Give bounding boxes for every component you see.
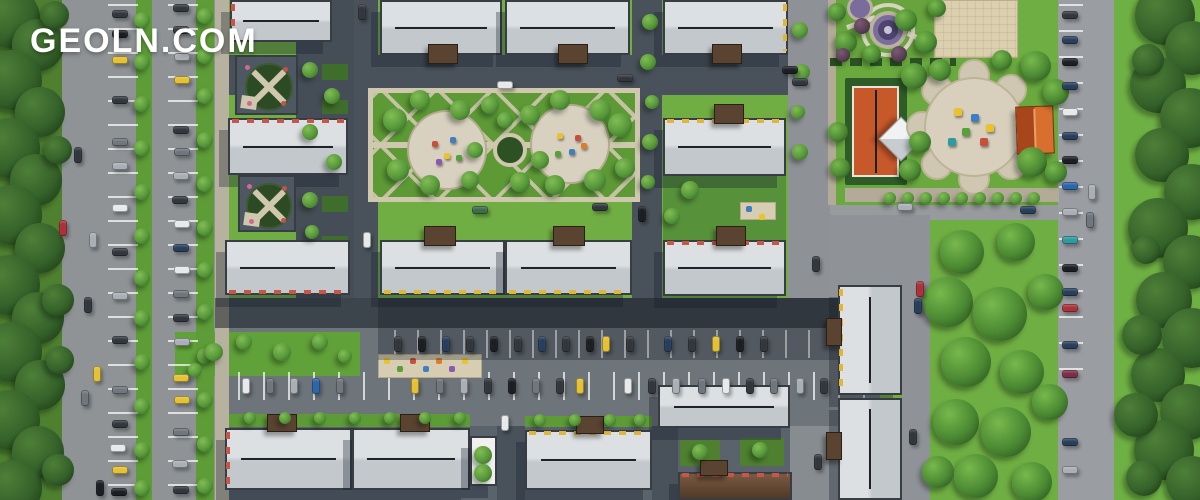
car-dark [626,336,634,352]
tree [461,171,479,189]
tree [922,456,954,488]
roof-deck-garden [238,175,296,232]
car-dark [556,378,564,394]
roof-ridge [678,267,771,269]
entrance-porch [826,318,842,346]
roof-ridge [678,27,772,29]
car-dark [792,78,808,86]
tree [681,181,699,199]
tree [941,337,991,387]
deck-flowerbed [281,101,286,106]
car-navy [1062,438,1078,446]
watermark-logo: GEOLN.COM [30,22,258,61]
tree [534,414,546,426]
road [902,215,930,500]
car-gray [112,138,128,146]
roof-ridge [395,27,487,29]
tree [981,407,1031,457]
car-taxi [576,378,584,394]
tree [205,343,223,361]
car-dark [112,336,128,344]
tree [531,151,549,169]
play-equipment [954,108,962,116]
play-equipment [555,151,561,157]
entrance-porch [428,44,458,64]
play-equipment [449,366,455,372]
tree [44,136,72,164]
road [652,426,678,500]
deck-flowerbed [245,65,250,70]
car-black [638,206,646,222]
tree [640,54,656,70]
play-equipment [575,135,581,141]
playground-strip [740,202,776,220]
facade-trim [783,4,787,51]
play-equipment [980,138,988,146]
tree [752,442,768,458]
plaza-paved [934,0,1018,58]
car-black [418,336,426,352]
tree [791,105,805,119]
car-gray [173,428,189,436]
tree [134,96,150,112]
tree [1132,236,1160,264]
building-block [225,428,352,490]
lawn [136,0,152,500]
tree [481,96,499,114]
car-dark [760,336,768,352]
tree [134,310,150,326]
tree [642,134,658,150]
tree [891,46,907,62]
facade-trim [384,290,501,294]
car-gray [266,378,274,394]
tree [279,412,291,424]
tree [792,144,808,160]
road [497,426,525,500]
car-blue [1062,182,1078,190]
tree [608,113,632,137]
car-white [242,378,250,394]
tree [410,90,430,110]
car-dark [112,10,128,18]
car-teal [1062,236,1078,244]
tree [929,59,951,81]
tree [992,50,1012,70]
tree [42,284,74,316]
tree [510,172,530,192]
tree [236,334,252,350]
play-equipment [746,206,752,212]
tree [895,9,917,31]
car-taxi [93,366,101,382]
car-black [111,488,127,496]
car-taxi [174,396,190,404]
road [788,0,832,330]
building-block [505,240,632,295]
car-white [363,232,371,248]
car-black [490,336,498,352]
car-silver [89,232,97,248]
building-block [380,240,505,295]
garden-flowerbed [884,26,892,34]
tree [197,392,213,408]
roof-deck-garden [235,55,298,115]
tree [273,343,291,361]
car-black [1062,156,1078,164]
tree [550,90,570,110]
car-silver [1088,184,1096,200]
car-white [110,444,126,452]
tree [1045,161,1067,183]
tree [326,154,342,170]
tree [854,18,870,34]
tree [450,100,470,120]
tree [420,175,440,195]
tree [604,414,616,426]
car-black [586,336,594,352]
tree [920,192,932,204]
tree [312,334,328,350]
tree [474,464,492,482]
tree [134,184,150,200]
lawn [322,196,348,212]
car-dark [592,203,608,211]
deck-flowerbed [281,218,286,223]
tree [828,122,848,142]
facade-trim [226,432,230,486]
roof-ridge [241,458,337,460]
car-gray [698,378,706,394]
car-dark [112,420,128,428]
tree [134,140,150,156]
tree [302,124,318,140]
car-red [59,220,67,236]
tree [197,478,213,494]
car-white [722,378,730,394]
roof-ridge [541,459,637,461]
car-red [1062,304,1078,312]
entrance-porch [714,104,744,124]
tree [134,354,150,370]
car-silver [460,378,468,394]
tree [940,230,984,274]
roof-ridge [869,297,871,384]
roof-ridge [240,267,334,269]
tree [1032,384,1068,420]
car-navy [664,336,672,352]
car-dark [394,336,402,352]
car-black [96,480,104,496]
tree [197,304,213,320]
car-dark [688,336,696,352]
car-black [508,378,516,394]
tree [584,169,606,191]
car-dark [84,297,92,313]
tree [997,223,1035,261]
tree [974,192,986,204]
car-silver [112,162,128,170]
tree [1028,192,1040,204]
car-silver [672,378,680,394]
tree [792,22,808,38]
building-block [678,472,792,500]
building-block [352,428,470,490]
tree [46,346,74,374]
tree [909,131,931,153]
tree [302,62,318,78]
facade-trim [682,473,788,477]
tree [1122,315,1162,355]
car-taxi [173,374,189,382]
tree [454,412,466,424]
car-taxi [112,466,128,474]
car-dark [358,4,366,20]
car-dark [820,378,828,394]
tree [1017,147,1047,177]
car-dark [173,4,189,12]
tree [589,99,611,121]
tree [387,159,409,181]
tree [973,287,1027,341]
tree [863,45,881,63]
car-green [472,206,488,214]
car-white [1062,108,1078,116]
play-equipment [759,214,765,220]
car-dark [74,147,82,163]
car-dark [812,256,820,272]
entrance-porch [553,226,585,246]
deck-flowerbed [247,184,252,189]
building-block [838,398,902,500]
tree [954,454,998,498]
car-taxi [712,336,720,352]
car-dark [484,378,492,394]
car-navy [1062,36,1078,44]
tree [520,105,540,125]
tree [836,48,850,62]
entrance-porch [712,44,742,64]
car-gray [436,378,444,394]
tree [923,277,973,327]
facade-trim [229,290,346,294]
lawn [322,64,348,80]
car-gray [532,378,540,394]
car-dark [562,336,570,352]
tree [992,192,1004,204]
car-navy [1062,288,1078,296]
tree [383,108,407,132]
tree [899,159,921,181]
car-silver [173,172,189,180]
car-black [1062,58,1078,66]
roof-ridge [869,409,871,489]
car-white [497,81,513,89]
facade-trim [509,290,628,294]
tree [828,3,846,21]
tree [338,349,352,363]
car-dark [172,196,188,204]
entrance-porch [424,226,456,246]
car-black [736,336,744,352]
tree [384,412,396,424]
tree [467,142,483,158]
car-silver [1062,466,1078,474]
car-dark [909,429,917,445]
deck-flowerbed [249,219,254,224]
play-equipment [569,149,575,155]
car-navy [1062,132,1078,140]
car-taxi [602,336,610,352]
car-gray [770,378,778,394]
play-equipment [432,141,438,147]
tree [615,158,635,178]
roof-ridge [243,146,334,148]
car-dark [173,126,189,134]
car-white [174,220,190,228]
tree [497,112,513,128]
car-silver [174,338,190,346]
tree [302,192,318,208]
car-silver [172,460,188,468]
car-dark [514,336,522,352]
tree [134,480,150,496]
tree [569,414,581,426]
tree [956,192,968,204]
tree [134,228,150,244]
car-maroon [1062,370,1078,378]
play-equipment [948,138,956,146]
car-white [112,204,128,212]
car-red [916,281,924,297]
car-navy [1062,82,1078,90]
car-white [174,266,190,274]
car-dark [173,314,189,322]
tree [134,270,150,286]
deck-flowerbed [282,186,287,191]
car-dark [112,248,128,256]
car-gray [1086,212,1094,228]
tree [134,398,150,414]
park-fountain [493,133,527,167]
play-equipment [450,137,456,143]
tree [419,412,431,424]
tree [197,132,213,148]
walkway [845,188,1059,202]
tree [1021,51,1051,81]
play-equipment [456,155,462,161]
car-silver [290,378,298,394]
tree [884,192,896,204]
car-white [624,378,632,394]
building-block [525,430,652,490]
canopy-ridge [1033,109,1036,151]
car-gray [336,378,344,394]
tree [324,88,340,104]
tree [244,412,256,424]
tree [197,88,213,104]
roof-ridge [678,146,771,148]
tennis-net-line [875,90,877,173]
deck-flowerbed [247,101,252,106]
tree [349,412,361,424]
car-navy [538,336,546,352]
car-dark [112,96,128,104]
tree [634,414,646,426]
play-equipment [971,114,979,122]
play-equipment [581,143,587,149]
play-equipment [557,133,563,139]
play-equipment [444,153,450,159]
tree [1028,274,1064,310]
roof-ridge [521,267,617,269]
play-equipment [962,128,970,136]
car-silver [112,292,128,300]
car-dark [648,378,656,394]
tree [933,399,979,445]
tree [314,412,326,424]
tree [830,158,850,178]
building-block [225,240,350,295]
deck-flowerbed [283,67,288,72]
roof-ridge [395,267,489,269]
lawn [196,0,214,500]
tree [42,454,74,486]
facade-trim [232,119,344,123]
car-taxi [174,76,190,84]
car-gray [81,390,89,406]
car-gray [112,386,128,394]
car-dark [466,336,474,352]
car-navy [914,298,922,314]
car-dark [814,454,822,470]
entrance-porch [826,432,842,460]
entrance-porch [716,226,746,246]
car-navy [173,244,189,252]
car-dark [1062,11,1078,19]
building-block [838,285,902,395]
roof-ridge [367,458,456,460]
tree [545,175,565,195]
play-equipment [986,124,994,132]
play-equipment [423,366,429,372]
building-block [663,240,786,296]
entrance-porch [700,460,728,476]
tree [692,444,708,460]
play-equipment [397,366,403,372]
tree [901,63,927,89]
car-gray [174,148,190,156]
car-navy [1020,206,1036,214]
play-equipment [436,159,442,165]
roof-ridge [520,27,614,29]
tree [1114,393,1158,437]
tree [188,363,202,377]
car-navy [1062,341,1078,349]
car-dark [173,486,189,494]
roof-ridge [674,406,774,408]
tree [642,14,658,30]
tree [134,442,150,458]
playground-main-circle [924,77,1024,177]
tree [915,31,937,53]
car-black [1062,264,1078,272]
car-dark [746,378,754,394]
car-silver [1062,208,1078,216]
tree [1132,44,1164,76]
tree [305,225,319,239]
car-black [782,66,798,74]
